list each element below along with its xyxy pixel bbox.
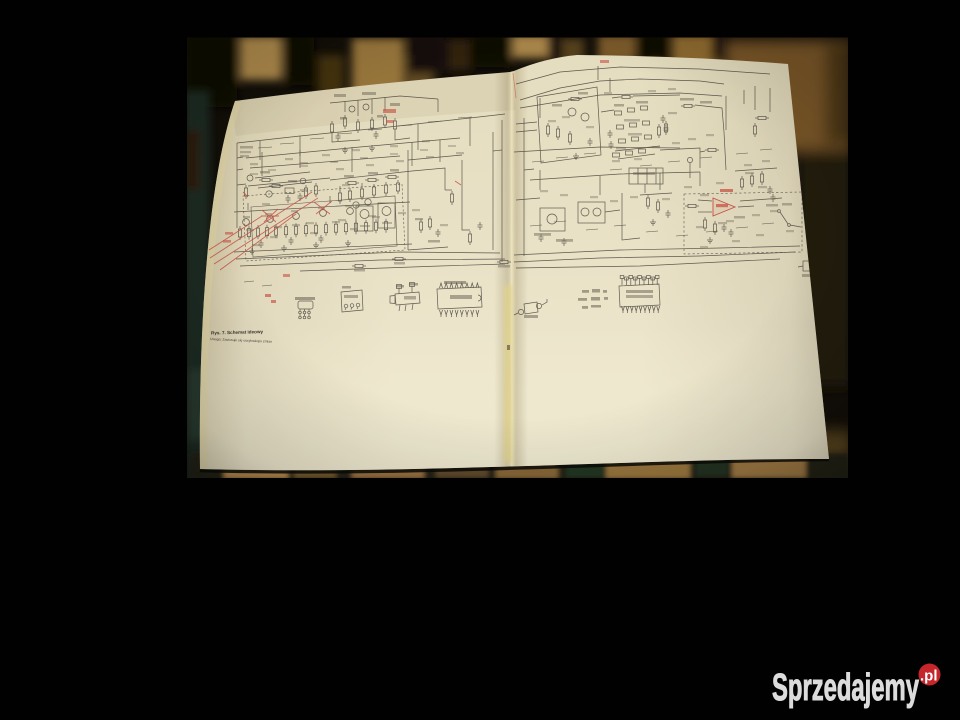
svg-text:Sprzedajemy: Sprzedajemy [772,667,919,709]
svg-text:.pl: .pl [920,668,938,685]
